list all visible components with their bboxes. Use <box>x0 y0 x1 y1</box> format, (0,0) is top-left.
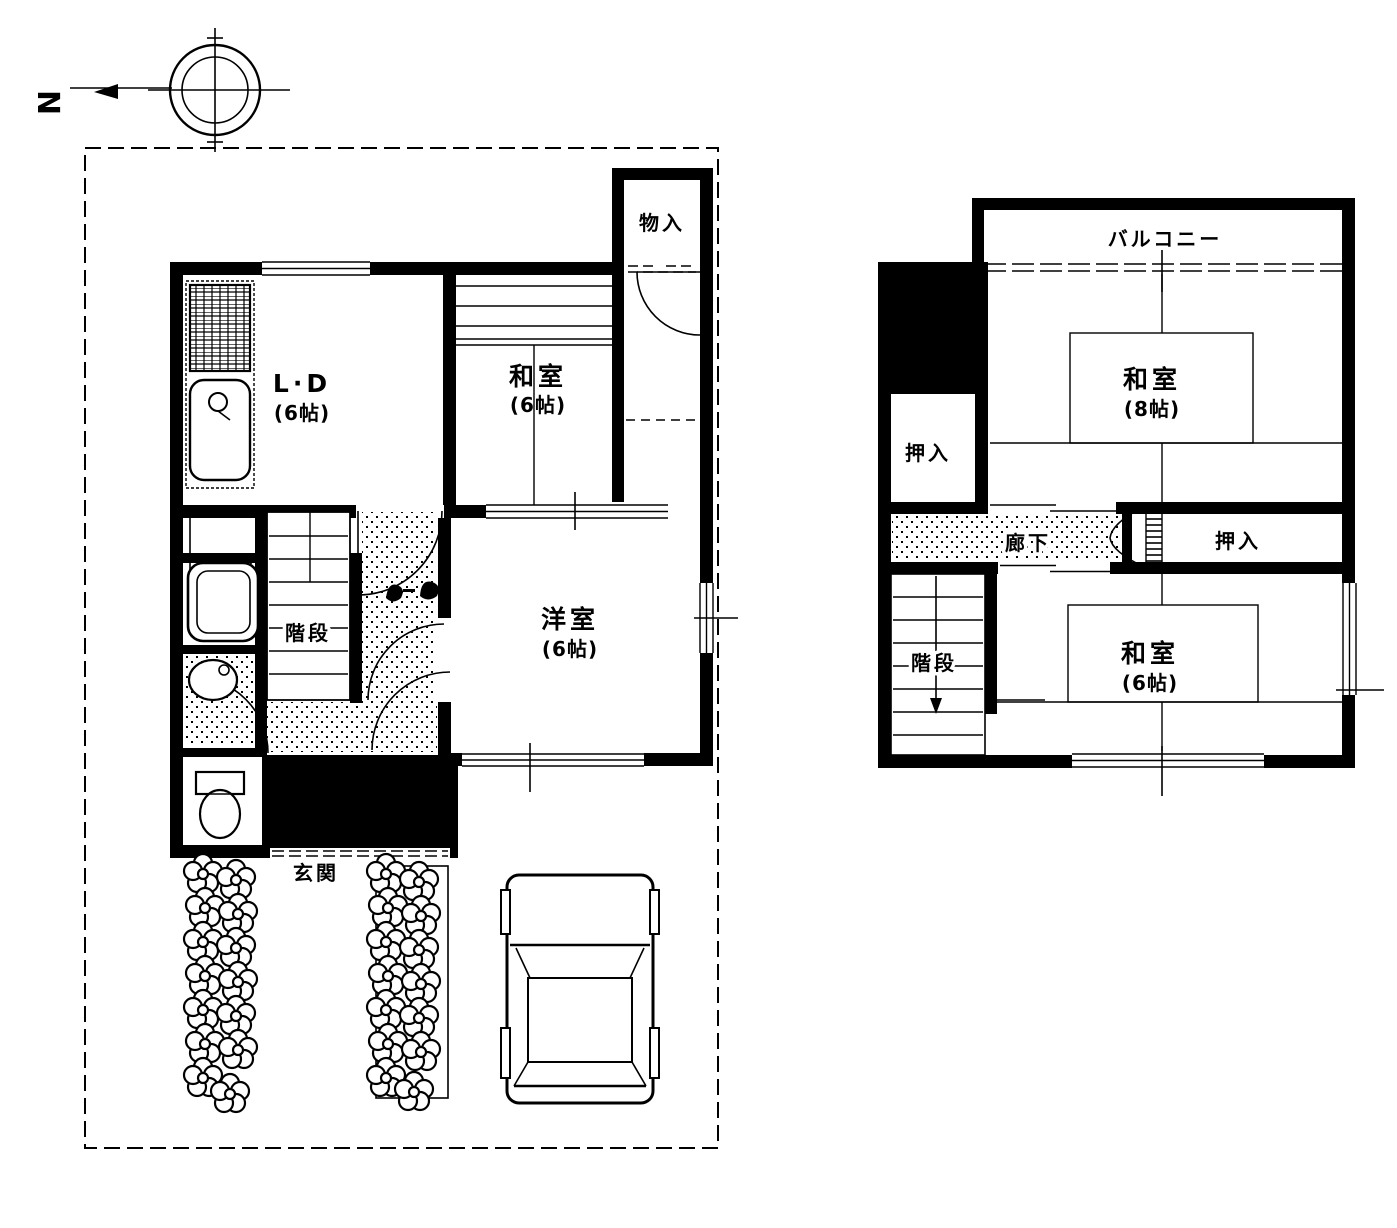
floor-plan-page: N <box>0 0 1397 1228</box>
entrance-area <box>262 755 458 860</box>
washitsu8-size: (8帖) <box>1124 397 1180 421</box>
western-room-label: 洋室 <box>541 605 599 634</box>
washitsu6-label: 和室 <box>1121 639 1179 668</box>
living-dining-label: L·D <box>273 369 331 398</box>
floor2-stairs-label: 階段 <box>911 651 957 675</box>
floor1-washitsu-label: 和室 <box>509 362 567 391</box>
hallway-label: 廊下 <box>1005 531 1051 555</box>
toilet-icon <box>196 772 244 838</box>
floor1-washitsu-size: (6帖) <box>510 393 566 417</box>
entrance-label: 玄関 <box>293 861 339 885</box>
car-icon <box>501 875 659 1103</box>
floor1-plan: 物入 L·D (6帖) 和室 (6帖) 洋室 (6帖) <box>85 148 738 1148</box>
kitchen-counter <box>186 281 254 488</box>
floor2-stairs: 階段 <box>891 574 1045 755</box>
hedge-left <box>184 854 257 1112</box>
balcony-label: バルコニー <box>1108 227 1223 251</box>
western-room-size: (6帖) <box>542 637 598 661</box>
floor1-stairs: 階段 <box>267 512 350 700</box>
living-dining-size: (6帖) <box>274 401 330 425</box>
floor2-plan: バルコニー 押入 和室 (8帖) 廊下 押入 <box>878 198 1384 796</box>
front-door-arc <box>637 272 700 335</box>
floor1-stairs-label: 階段 <box>285 621 331 645</box>
storage-label: 物入 <box>639 211 685 235</box>
washitsu8-label: 和室 <box>1123 365 1181 394</box>
hedge-right <box>367 854 448 1110</box>
compass-north-label: N <box>30 90 65 115</box>
bathtub-icon <box>188 563 258 641</box>
balcony-rail <box>984 250 1342 292</box>
washitsu6-size: (6帖) <box>1122 671 1178 695</box>
compass: N <box>30 28 290 152</box>
floor2-closet-right-label: 押入 <box>1215 529 1261 553</box>
stove-icon <box>190 285 250 371</box>
floor2-solid-block <box>878 262 981 394</box>
north-arrow-icon <box>94 84 118 99</box>
floor2-closet-left-label: 押入 <box>905 441 951 465</box>
washbasin-icon <box>189 660 237 700</box>
